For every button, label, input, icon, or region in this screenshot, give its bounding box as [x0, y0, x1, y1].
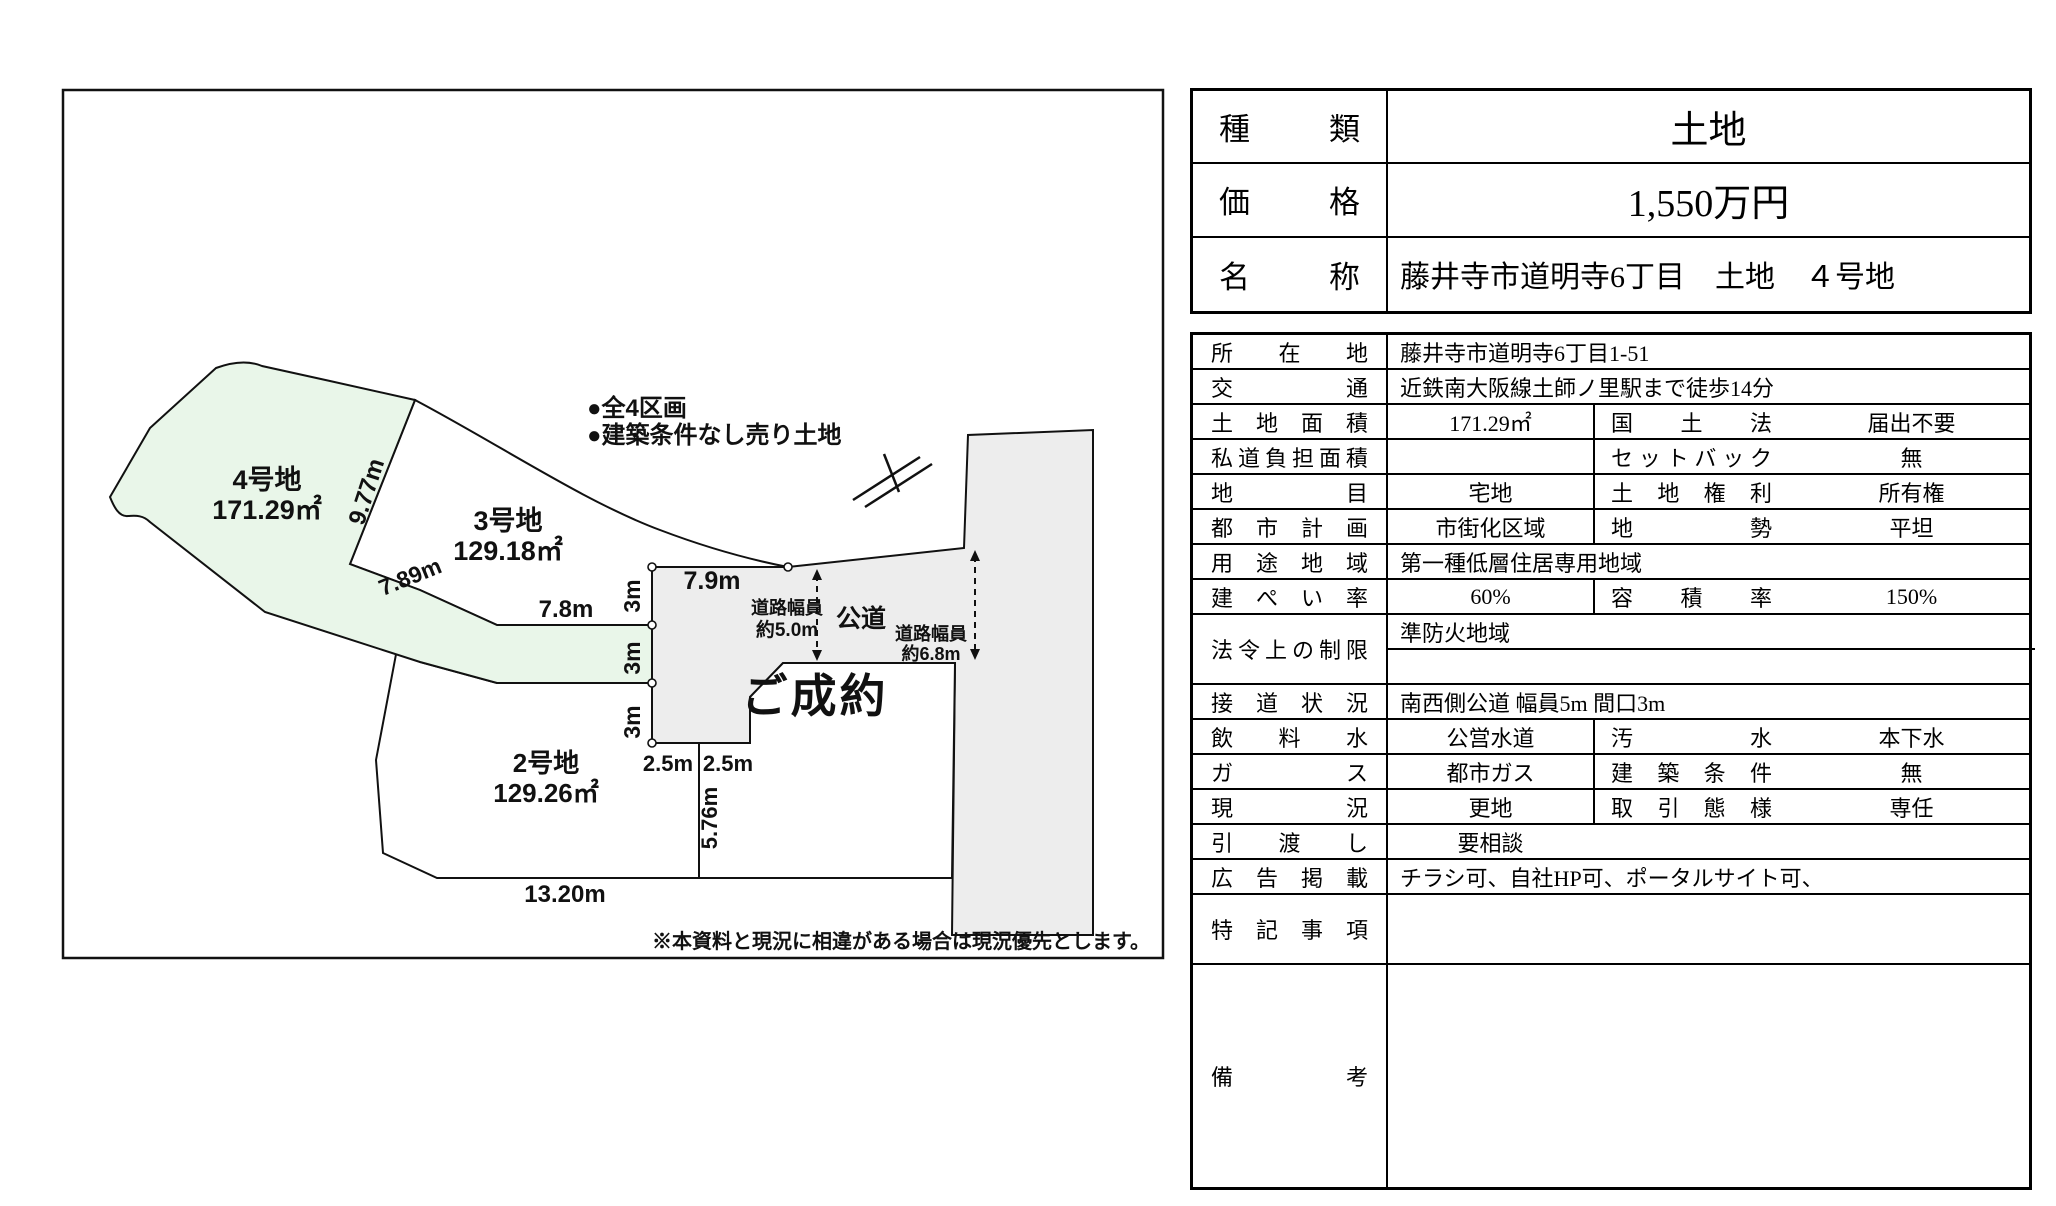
- detail-row: ガス都市ガス建築条件無: [1193, 755, 2029, 790]
- detail-label: 備考: [1193, 965, 1388, 1187]
- detail-value-stack: 準防火地域: [1388, 615, 2035, 683]
- label-text: 私道負担面積: [1211, 441, 1368, 473]
- detail-row: 都市計画市街化区域地勢平坦: [1193, 510, 2029, 545]
- detail-row: 備考: [1193, 965, 2029, 1187]
- label-text: 土地面積: [1211, 406, 1368, 438]
- detail-value: 専任: [1788, 790, 2035, 823]
- label-text: 所在地: [1211, 336, 1368, 368]
- detail-label: 所在地: [1193, 335, 1388, 368]
- dim-3m-mid: 3m: [619, 641, 645, 674]
- detail-value: 準防火地域: [1388, 615, 2035, 650]
- detail-label: ガス: [1193, 755, 1388, 788]
- dim-7-8m: 7.8m: [539, 596, 594, 623]
- detail-value: 市街化区域: [1388, 510, 1593, 543]
- detail-label: 用途地域: [1193, 545, 1388, 578]
- detail-label: 現況: [1193, 790, 1388, 823]
- dim-13-20m: 13.20m: [524, 881, 605, 908]
- detail-value: 本下水: [1788, 720, 2035, 753]
- detail-label: 土地面積: [1193, 405, 1388, 438]
- details-table: 所在地藤井寺市道明寺6丁目1-51交通近鉄南大阪線土師ノ里駅まで徒歩14分土地面…: [1190, 332, 2032, 1190]
- label-text: 国土法: [1611, 406, 1772, 438]
- detail-value: 平坦: [1788, 510, 2035, 543]
- lot2-area: 129.26㎡: [493, 778, 599, 808]
- detail-sublabel: セットバック: [1593, 440, 1788, 473]
- detail-row: 土地面積171.29㎡国土法届出不要: [1193, 405, 2029, 440]
- label-text: 地勢: [1611, 511, 1772, 543]
- label-text: 広告掲載: [1211, 861, 1368, 893]
- detail-row: 引渡し要相談: [1193, 825, 2029, 860]
- label-text: 汚水: [1611, 721, 1772, 753]
- road-width-68m-label-line2: 約6.8m: [901, 643, 960, 664]
- public-road-label: 公道: [836, 604, 886, 633]
- detail-row: 所在地藤井寺市道明寺6丁目1-51: [1193, 335, 2029, 370]
- dim-2-5m-right: 2.5m: [703, 751, 753, 776]
- label-text: 取引態様: [1611, 791, 1772, 823]
- label-text: 都市計画: [1211, 511, 1368, 543]
- label-text: 地目: [1211, 476, 1368, 508]
- label-text: ガス: [1211, 756, 1368, 788]
- label-text: 接道状況: [1211, 686, 1368, 718]
- detail-sublabel: 建築条件: [1593, 755, 1788, 788]
- summary-table: 種類土地価格1,550万円名称藤井寺市道明寺6丁目 土地 ４号地: [1190, 88, 2032, 314]
- summary-value: 藤井寺市道明寺6丁目 土地 ４号地: [1388, 238, 2029, 311]
- detail-value: 要相談: [1388, 825, 2035, 858]
- detail-sublabel: 土地権利: [1593, 475, 1788, 508]
- detail-row: 現況更地取引態様専任: [1193, 790, 2029, 825]
- summary-label: 価格: [1193, 164, 1388, 235]
- lot4-name: 4号地: [232, 465, 301, 495]
- road-width-68m-label-line1: 道路幅員: [895, 623, 967, 644]
- detail-row: 私道負担面積セットバック無: [1193, 440, 2029, 475]
- detail-row: 接道状況南西側公道 幅員5m 間口3m: [1193, 685, 2029, 720]
- label-text: 土地権利: [1611, 476, 1772, 508]
- detail-row: 特記事項: [1193, 895, 2029, 965]
- label-text: セットバック: [1611, 441, 1772, 473]
- label-text: 引渡し: [1211, 826, 1368, 858]
- detail-value: チラシ可、自社HP可、ポータルサイト可、: [1388, 860, 2035, 893]
- detail-value: 近鉄南大阪線土師ノ里駅まで徒歩14分: [1388, 370, 2035, 403]
- detail-sublabel: 国土法: [1593, 405, 1788, 438]
- label-text: 種類: [1219, 104, 1360, 149]
- note-line1: ●全4区画: [587, 394, 687, 422]
- label-text: 特記事項: [1211, 913, 1368, 945]
- sold-label: ご成約: [742, 670, 889, 722]
- detail-value: 更地: [1388, 790, 1593, 823]
- detail-value: 171.29㎡: [1388, 405, 1593, 438]
- label-text: 建ぺい率: [1211, 581, 1368, 613]
- detail-label: 建ぺい率: [1193, 580, 1388, 613]
- note-line2: ●建築条件なし売り土地: [587, 421, 842, 449]
- detail-value: 60%: [1388, 580, 1593, 613]
- detail-value: 都市ガス: [1388, 755, 1593, 788]
- detail-row: 建ぺい率60%容積率150%: [1193, 580, 2029, 615]
- detail-label: 特記事項: [1193, 895, 1388, 963]
- summary-label: 名称: [1193, 238, 1388, 311]
- detail-label: 接道状況: [1193, 685, 1388, 718]
- detail-value: 藤井寺市道明寺6丁目1-51: [1388, 335, 2035, 368]
- lot3-name: 3号地: [473, 506, 542, 536]
- detail-label: 法令上の制限: [1193, 615, 1388, 683]
- label-text: 建築条件: [1611, 756, 1772, 788]
- detail-label: 交通: [1193, 370, 1388, 403]
- dim-3m-top: 3m: [619, 579, 645, 612]
- detail-value: 宅地: [1388, 475, 1593, 508]
- label-text: 法令上の制限: [1211, 633, 1368, 665]
- label-text: 交通: [1211, 371, 1368, 403]
- lot3-area: 129.18㎡: [453, 535, 563, 566]
- detail-value: 150%: [1788, 580, 2035, 613]
- detail-value: [1388, 895, 2035, 963]
- detail-label: 地目: [1193, 475, 1388, 508]
- detail-row: 交通近鉄南大阪線土師ノ里駅まで徒歩14分: [1193, 370, 2029, 405]
- detail-row: 用途地域第一種低層住居専用地域: [1193, 545, 2029, 580]
- dim-7-9m: 7.9m: [684, 567, 741, 595]
- detail-value-text: 要相談: [1388, 826, 1593, 858]
- summary-row: 名称藤井寺市道明寺6丁目 土地 ４号地: [1193, 238, 2029, 311]
- detail-label: 広告掲載: [1193, 860, 1388, 893]
- road-width-5m-label-line2: 約5.0m: [756, 618, 818, 641]
- summary-value: 土地: [1388, 91, 2029, 162]
- detail-row: 地目宅地土地権利所有権: [1193, 475, 2029, 510]
- property-flyer: ●全4区画 ●建築条件なし売り土地 4号地 171.29㎡ 3号地 129.18…: [0, 0, 2056, 1206]
- lot2-name: 2号地: [513, 748, 579, 778]
- detail-value: 届出不要: [1788, 405, 2035, 438]
- label-text: 価格: [1219, 177, 1360, 222]
- summary-label: 種類: [1193, 91, 1388, 162]
- summary-row: 種類土地: [1193, 91, 2029, 164]
- dim-2-5m-left: 2.5m: [643, 751, 693, 776]
- detail-sublabel: 汚水: [1593, 720, 1788, 753]
- detail-row: 広告掲載チラシ可、自社HP可、ポータルサイト可、: [1193, 860, 2029, 895]
- dim-5-76m: 5.76m: [697, 787, 722, 849]
- label-text: 容積率: [1611, 581, 1772, 613]
- detail-value: 所有権: [1788, 475, 2035, 508]
- label-text: 備考: [1211, 1060, 1368, 1092]
- detail-label: 飲料水: [1193, 720, 1388, 753]
- detail-sublabel: 地勢: [1593, 510, 1788, 543]
- detail-row: 法令上の制限準防火地域: [1193, 615, 2029, 685]
- label-text: 飲料水: [1211, 721, 1368, 753]
- detail-label: 私道負担面積: [1193, 440, 1388, 473]
- detail-value: [1388, 965, 2035, 1187]
- label-text: 現況: [1211, 791, 1368, 823]
- summary-row: 価格1,550万円: [1193, 164, 2029, 237]
- label-text: 用途地域: [1211, 546, 1368, 578]
- detail-sublabel: 容積率: [1593, 580, 1788, 613]
- detail-value: 南西側公道 幅員5m 間口3m: [1388, 685, 2035, 718]
- detail-value: [1388, 440, 1593, 473]
- detail-value: 無: [1788, 755, 2035, 788]
- road-width-5m-label-line1: 道路幅員: [751, 597, 823, 618]
- detail-label: 引渡し: [1193, 825, 1388, 858]
- detail-value: 無: [1788, 440, 2035, 473]
- detail-value: 公営水道: [1388, 720, 1593, 753]
- disclaimer-note: ※本資料と現況に相違がある場合は現況優先とします。: [652, 929, 1150, 953]
- detail-sublabel: 取引態様: [1593, 790, 1788, 823]
- detail-label: 都市計画: [1193, 510, 1388, 543]
- detail-value: [1388, 650, 2035, 683]
- detail-row: 飲料水公営水道汚水本下水: [1193, 720, 2029, 755]
- dim-3m-bottom: 3m: [619, 705, 645, 738]
- label-text: 名称: [1219, 252, 1360, 297]
- summary-value: 1,550万円: [1388, 164, 2029, 235]
- lot4-area: 171.29㎡: [212, 494, 322, 525]
- detail-value: 第一種低層住居専用地域: [1388, 545, 2035, 578]
